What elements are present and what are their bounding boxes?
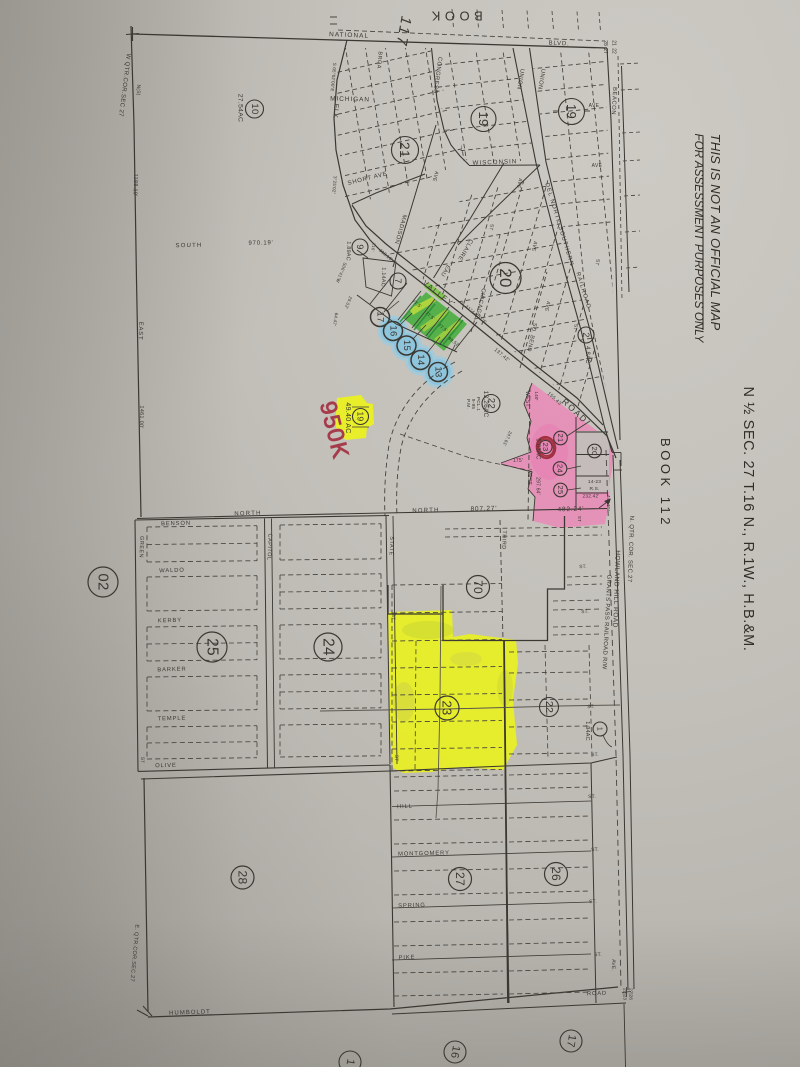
svg-text:21: 21 <box>397 142 413 158</box>
svg-text:FOR ASSESSMENT PURPOSES ONLY: FOR ASSESSMENT PURPOSES ONLY <box>692 133 704 343</box>
svg-text:28: 28 <box>236 871 250 885</box>
svg-text:15: 15 <box>401 340 412 351</box>
svg-text:ST: ST <box>487 223 494 231</box>
svg-text:1461.00': 1461.00' <box>138 405 145 429</box>
svg-text:807.27': 807.27' <box>471 505 498 513</box>
svg-text:R.S.: R.S. <box>589 486 599 492</box>
svg-text:21: 21 <box>556 434 565 443</box>
svg-text:24: 24 <box>320 638 337 656</box>
svg-text:24: 24 <box>556 464 565 473</box>
svg-text:27: 27 <box>602 48 608 54</box>
svg-text:1188.10': 1188.10' <box>132 173 139 196</box>
svg-text:70: 70 <box>471 580 485 594</box>
svg-text:ST.: ST. <box>581 609 589 615</box>
svg-text:232.42': 232.42' <box>582 493 599 499</box>
svg-text:ST.: ST. <box>588 794 596 800</box>
svg-text:BARKER: BARKER <box>157 667 186 674</box>
svg-text:AVE.: AVE. <box>610 959 616 971</box>
svg-text:13: 13 <box>433 366 444 377</box>
svg-text:ST: ST <box>390 614 396 621</box>
svg-text:ST.: ST. <box>579 564 587 570</box>
svg-text:17: 17 <box>375 311 386 322</box>
svg-text:WEST: WEST <box>524 391 530 407</box>
svg-text:22: 22 <box>543 701 555 713</box>
svg-text:9: 9 <box>355 244 365 249</box>
svg-text:ST.: ST. <box>587 704 595 710</box>
svg-text:14: 14 <box>415 354 426 365</box>
svg-text:SPRING: SPRING <box>398 903 426 910</box>
svg-text:ST: ST <box>393 755 399 762</box>
svg-text:25: 25 <box>556 486 565 495</box>
svg-text:27: 27 <box>453 872 467 886</box>
svg-text:02: 02 <box>95 573 112 590</box>
svg-text:19: 19 <box>564 104 579 119</box>
svg-text:BOOK 112: BOOK 112 <box>658 438 673 528</box>
svg-text:ST: ST <box>139 757 145 764</box>
svg-text:20: 20 <box>496 268 515 288</box>
svg-text:19: 19 <box>356 411 366 421</box>
svg-text:1.14AC: 1.14AC <box>380 267 387 287</box>
svg-text:22: 22 <box>611 48 617 54</box>
svg-text:1: 1 <box>596 727 605 731</box>
svg-text:ST: ST <box>577 516 582 522</box>
svg-text:AVE: AVE <box>592 163 603 169</box>
svg-text:ST.: ST. <box>591 847 599 853</box>
svg-text:297.64': 297.64' <box>535 477 541 495</box>
svg-text:17: 17 <box>564 1034 578 1049</box>
svg-text:ST: ST <box>571 323 578 331</box>
svg-text:THIRD: THIRD <box>500 530 507 550</box>
svg-text:BOOK: BOOK <box>427 9 483 24</box>
svg-text:MICHIGAN: MICHIGAN <box>330 95 370 103</box>
svg-text:27|26: 27|26 <box>628 988 634 1000</box>
svg-text:482.24': 482.24' <box>558 506 585 514</box>
svg-text:PIKE: PIKE <box>398 955 415 961</box>
svg-text:1.94AC: 1.94AC <box>584 721 590 741</box>
svg-text:CAPITOL: CAPITOL <box>266 533 273 560</box>
svg-text:19: 19 <box>476 111 491 126</box>
svg-text:ST.: ST. <box>589 899 597 905</box>
svg-text:HILL: HILL <box>397 804 413 810</box>
svg-text:WEST: WEST <box>526 469 532 485</box>
svg-text:WALDO: WALDO <box>159 568 185 575</box>
svg-text:28: 28 <box>602 40 608 46</box>
svg-text:BLVD.: BLVD. <box>548 41 569 48</box>
svg-text:7: 7 <box>393 278 403 283</box>
svg-text:20: 20 <box>590 447 599 456</box>
svg-text:BENSON: BENSON <box>161 521 191 528</box>
svg-text:10: 10 <box>249 103 260 114</box>
svg-text:27.54AC: 27.54AC <box>237 94 244 123</box>
svg-text:ST: ST <box>593 258 600 266</box>
svg-text:26: 26 <box>549 867 563 881</box>
svg-text:970.19': 970.19' <box>248 240 273 246</box>
svg-text:1.89AC: 1.89AC <box>345 241 352 261</box>
svg-text:23: 23 <box>440 700 455 715</box>
svg-text:140': 140' <box>534 391 539 400</box>
svg-text:13.26AC: 13.26AC <box>482 391 489 418</box>
svg-text:2: 2 <box>581 332 591 337</box>
svg-text:THIS IS NOT AN OFFICIAL MAP: THIS IS NOT AN OFFICIAL MAP <box>708 134 723 331</box>
svg-text:ST.: ST. <box>594 952 602 958</box>
svg-text:5.03AC: 5.03AC <box>535 438 541 460</box>
svg-text:16: 16 <box>388 325 399 336</box>
svg-text:KERBY: KERBY <box>158 618 182 625</box>
svg-text:TEMPLE: TEMPLE <box>158 716 187 723</box>
svg-text:4.8AC: 4.8AC <box>584 346 590 364</box>
svg-text:N ½ SEC. 27 T.16 N., R.1W., H: N ½ SEC. 27 T.16 N., R.1W., H.B.&M. <box>740 387 756 652</box>
svg-text:21: 21 <box>611 40 617 46</box>
svg-text:14-23: 14-23 <box>588 479 601 485</box>
svg-text:ELK: ELK <box>331 104 339 119</box>
svg-text:EAST: EAST <box>137 321 144 340</box>
svg-text:GREEN: GREEN <box>138 536 145 558</box>
svg-text:23: 23 <box>541 443 550 452</box>
svg-text:ST.: ST. <box>591 752 599 758</box>
svg-text:25: 25 <box>204 638 221 656</box>
svg-text:N(S): N(S) <box>135 84 141 95</box>
svg-text:OLIVE: OLIVE <box>155 763 177 770</box>
svg-text:16: 16 <box>448 1045 462 1060</box>
svg-text:STATE: STATE <box>388 536 395 556</box>
svg-text:NORTH: NORTH <box>234 511 261 518</box>
svg-text:P.M.: P.M. <box>465 399 471 409</box>
svg-text:ROAD: ROAD <box>587 991 607 998</box>
svg-text:NORTH: NORTH <box>412 508 439 515</box>
svg-text:175': 175' <box>513 458 523 464</box>
svg-text:SOUTH: SOUTH <box>175 243 202 249</box>
svg-text:AVE: AVE <box>589 103 600 109</box>
